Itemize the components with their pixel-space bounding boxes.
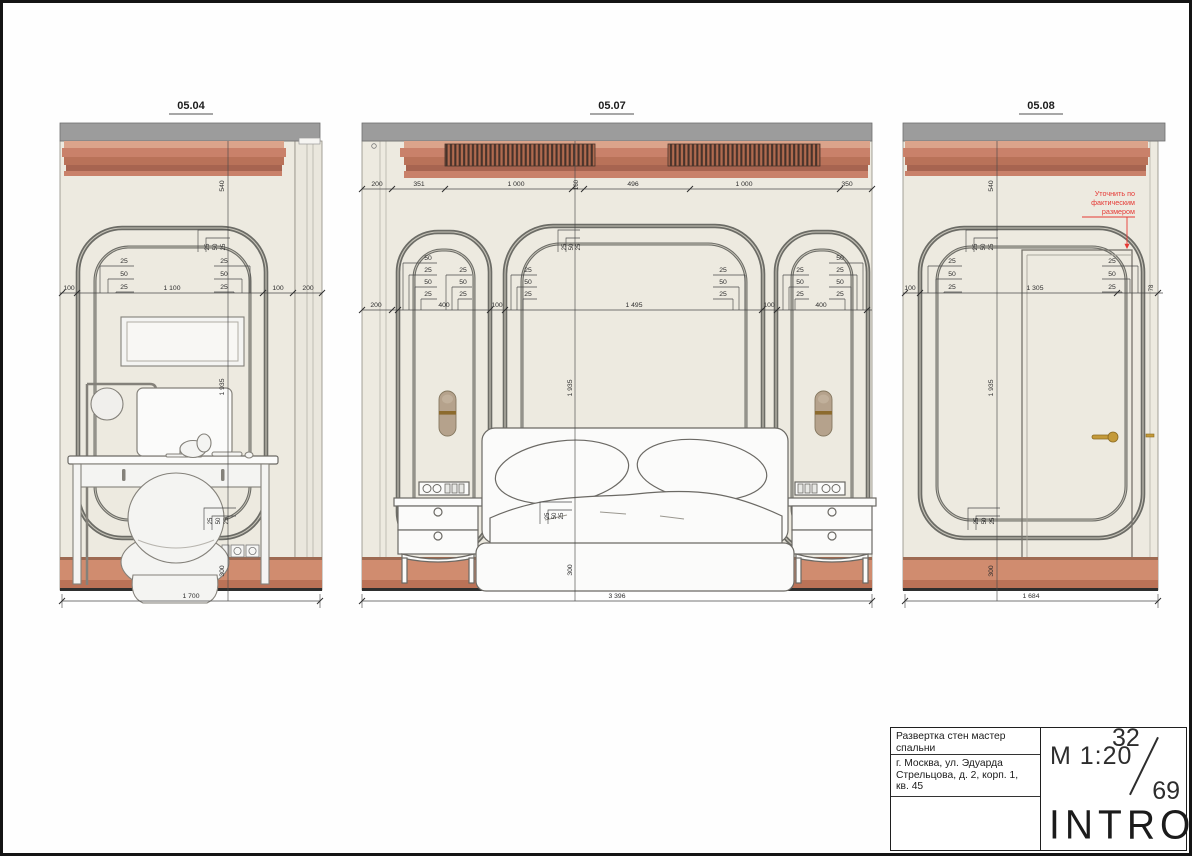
sheet-number: 32 <box>1112 724 1140 753</box>
switch-panel-right <box>795 482 845 495</box>
dim-label: 25 <box>459 267 467 274</box>
dim-label: 50 <box>836 255 844 262</box>
sheet-total: 69 <box>1152 777 1180 806</box>
elevation-05-04: 05.04 <box>59 100 325 608</box>
dim-label: 25 <box>208 517 214 524</box>
dim-label: 25 <box>990 517 996 524</box>
dim-label: 50 <box>982 517 988 524</box>
dim-label: 400 <box>438 302 450 309</box>
address-line: кв. 45 <box>896 781 923 792</box>
dim-label: 25 <box>796 267 804 274</box>
brand-logo: INTRO <box>1049 803 1192 849</box>
dim-label: 25 <box>948 284 956 291</box>
dim-label: 1 000 <box>507 181 524 188</box>
dim-label: 78 <box>1149 284 1155 291</box>
dim-label: 25 <box>1108 258 1116 265</box>
drawing-title-line: Развертка стен мастер <box>896 731 1006 742</box>
dim-label: 25 <box>836 291 844 298</box>
dim-label: 25 <box>524 291 532 298</box>
dim-label: 351 <box>413 181 425 188</box>
dim-label: 300 <box>219 565 226 577</box>
elevation-05-07: 05.07 <box>359 100 876 608</box>
dim-label: 50 <box>552 512 558 519</box>
dim-label: 350 <box>841 181 853 188</box>
dim-label: 25 <box>424 291 432 298</box>
dim-label: 25 <box>974 517 980 524</box>
mouse <box>245 452 253 458</box>
elevation-label: 05.07 <box>598 100 626 112</box>
dim-label: 3 396 <box>608 593 625 600</box>
dim-label: 25 <box>424 267 432 274</box>
dim-label: 25 <box>836 267 844 274</box>
dim-label: 25 <box>562 243 568 250</box>
title-block-info: Развертка стен мастер спальни г. Москва,… <box>891 728 1041 850</box>
dim-label: 1 684 <box>1022 593 1039 600</box>
dim-label: 25 <box>205 243 211 250</box>
crown-molding <box>903 141 1150 176</box>
note-line: Уточнить по <box>1095 189 1135 198</box>
dim-label: 1 305 <box>1026 285 1043 292</box>
dim-label: 25 <box>224 517 230 524</box>
dim-label: 100 <box>904 285 916 292</box>
address-line: г. Москва, ул. Эдуарда <box>896 758 1003 769</box>
dim-label: 200 <box>371 181 383 188</box>
dim-label: 1 935 <box>988 379 995 396</box>
dim-label: 300 <box>567 564 574 576</box>
baseboard <box>903 557 1158 591</box>
elevation-05-08: 05.08 <box>902 100 1165 608</box>
project-address: г. Москва, ул. Эдуарда Стрельцова, д. 2,… <box>891 755 1040 797</box>
dim-label: 25 <box>559 512 565 519</box>
dim-label: 50 <box>948 271 956 278</box>
elevation-label: 05.08 <box>1027 100 1055 112</box>
crown-molding <box>400 141 870 178</box>
dim-label: 1 495 <box>625 302 642 309</box>
title-block: Развертка стен мастер спальни г. Москва,… <box>890 727 1187 851</box>
dim-label: 100 <box>763 302 775 309</box>
dim-label: 25 <box>220 258 228 265</box>
dim-label: 200 <box>370 302 382 309</box>
ceiling-band <box>60 123 320 141</box>
keyboard <box>212 452 242 456</box>
dim-label: 25 <box>576 243 582 250</box>
dim-label: 200 <box>302 285 314 292</box>
dim-label: 25 <box>989 243 995 250</box>
dim-label: 50 <box>981 243 987 250</box>
dim-label: 25 <box>796 291 804 298</box>
dim-label: 100 <box>272 285 284 292</box>
elevation-label: 05.04 <box>177 100 205 112</box>
dim-label: 25 <box>524 267 532 274</box>
dim-label: 25 <box>120 258 128 265</box>
dim-label: 1 935 <box>567 379 574 396</box>
dim-label: 160 <box>574 179 580 190</box>
dim-label: 1 100 <box>163 285 180 292</box>
bed <box>476 428 794 591</box>
ceiling-band <box>903 123 1165 141</box>
dim-label: 1 935 <box>219 378 226 395</box>
switch-panel-left <box>419 482 469 495</box>
dim-label: 25 <box>120 284 128 291</box>
dim-label: 540 <box>219 180 226 192</box>
dim-label: 25 <box>545 512 551 519</box>
dim-label: 400 <box>815 302 827 309</box>
dim-label: 50 <box>1108 271 1116 278</box>
dim-label: 50 <box>524 279 532 286</box>
address-line: Стрельцова, д. 2, корп. 1, <box>896 770 1018 781</box>
dim-label: 50 <box>796 279 804 286</box>
dim-label: 50 <box>719 279 727 286</box>
dim-label: 25 <box>719 267 727 274</box>
sheet-counter: 32 69 <box>1110 730 1182 802</box>
dim-label: 100 <box>491 302 503 309</box>
dim-label: 1 700 <box>182 593 199 600</box>
note-line: фактическим <box>1091 198 1135 207</box>
dim-label: 25 <box>948 258 956 265</box>
dim-label: 100 <box>63 285 75 292</box>
dim-label: 300 <box>988 565 995 577</box>
dim-label: 25 <box>973 243 979 250</box>
dim-label: 496 <box>627 181 639 188</box>
dim-label: 25 <box>1108 284 1116 291</box>
dim-label: 540 <box>988 180 995 192</box>
dim-label: 50 <box>459 279 467 286</box>
ceiling-band <box>362 123 872 141</box>
drawing-sheet: 05.04 <box>0 0 1192 856</box>
title-block-empty-cell <box>891 797 1040 850</box>
note-line: размером <box>1102 207 1135 216</box>
crown-molding <box>62 141 286 176</box>
dim-label: 25 <box>719 291 727 298</box>
dim-label: 50 <box>569 243 575 250</box>
dim-label: 50 <box>216 517 222 524</box>
title-block-meta: М 1:20 32 69 INTRO <box>1041 728 1186 850</box>
wall-return <box>295 141 322 590</box>
dim-label: 50 <box>424 255 432 262</box>
dim-label: 50 <box>213 243 219 250</box>
drawing-title-line: спальни <box>896 743 935 754</box>
dim-label: 50 <box>220 271 228 278</box>
dim-label: 50 <box>836 279 844 286</box>
dim-label: 25 <box>459 291 467 298</box>
dim-label: 25 <box>221 243 227 250</box>
armchair <box>121 473 229 603</box>
drawing-title: Развертка стен мастер спальни <box>891 728 1040 755</box>
vent-grille <box>445 144 595 166</box>
dim-label: 25 <box>220 284 228 291</box>
dim-label: 50 <box>424 279 432 286</box>
dim-label: 1 000 <box>735 181 752 188</box>
vent-grille <box>668 144 820 166</box>
dim-label: 50 <box>120 271 128 278</box>
